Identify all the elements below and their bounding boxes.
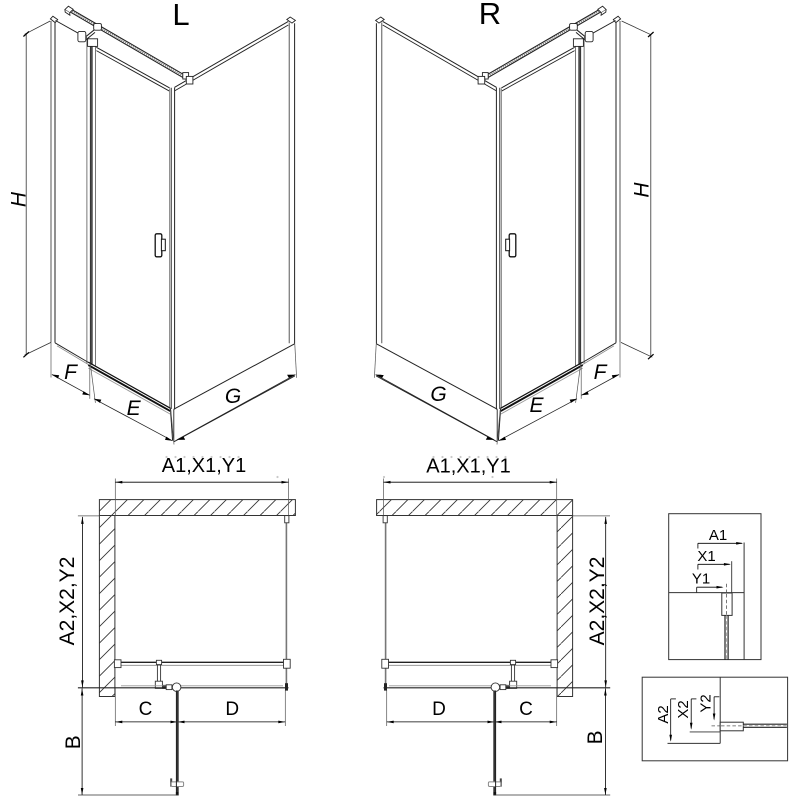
svg-text:H: H [8, 191, 31, 207]
svg-text:Y1: Y1 [692, 571, 710, 588]
svg-text:R: R [479, 0, 501, 31]
svg-text:X1: X1 [697, 548, 715, 565]
svg-text:L: L [172, 0, 189, 32]
svg-text:H: H [631, 182, 654, 198]
svg-text:G: G [430, 383, 446, 406]
svg-text:A1: A1 [709, 527, 727, 544]
svg-text:D: D [225, 699, 239, 720]
svg-text:A2,X2,Y2: A2,X2,Y2 [586, 557, 609, 646]
svg-text:E: E [529, 394, 544, 417]
svg-text:A2,X2,Y2: A2,X2,Y2 [56, 557, 79, 646]
svg-text:C: C [519, 699, 533, 720]
svg-text:B: B [62, 735, 85, 749]
svg-text:A1,X1,Y1: A1,X1,Y1 [426, 456, 511, 478]
svg-text:Y2: Y2 [698, 694, 715, 712]
svg-text:F: F [594, 361, 608, 384]
svg-text:G: G [225, 385, 241, 408]
svg-text:B: B [584, 730, 607, 744]
svg-text:D: D [432, 699, 446, 720]
svg-text:A1,X1,Y1: A1,X1,Y1 [162, 455, 247, 477]
svg-text:C: C [139, 699, 153, 720]
svg-text:F: F [64, 361, 78, 384]
svg-text:A2: A2 [655, 705, 672, 723]
svg-text:E: E [127, 397, 142, 420]
svg-text:X2: X2 [675, 700, 692, 718]
